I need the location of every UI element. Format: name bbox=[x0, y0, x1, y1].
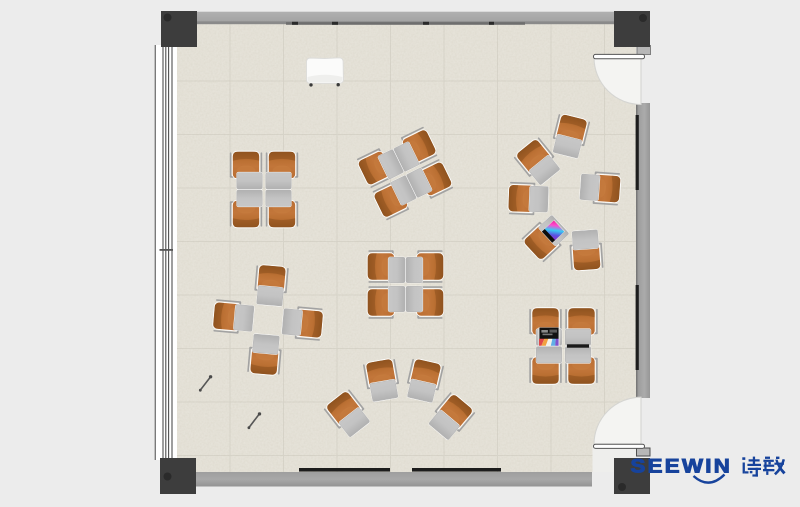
svg-text:SEEWIN: SEEWIN bbox=[631, 456, 733, 477]
